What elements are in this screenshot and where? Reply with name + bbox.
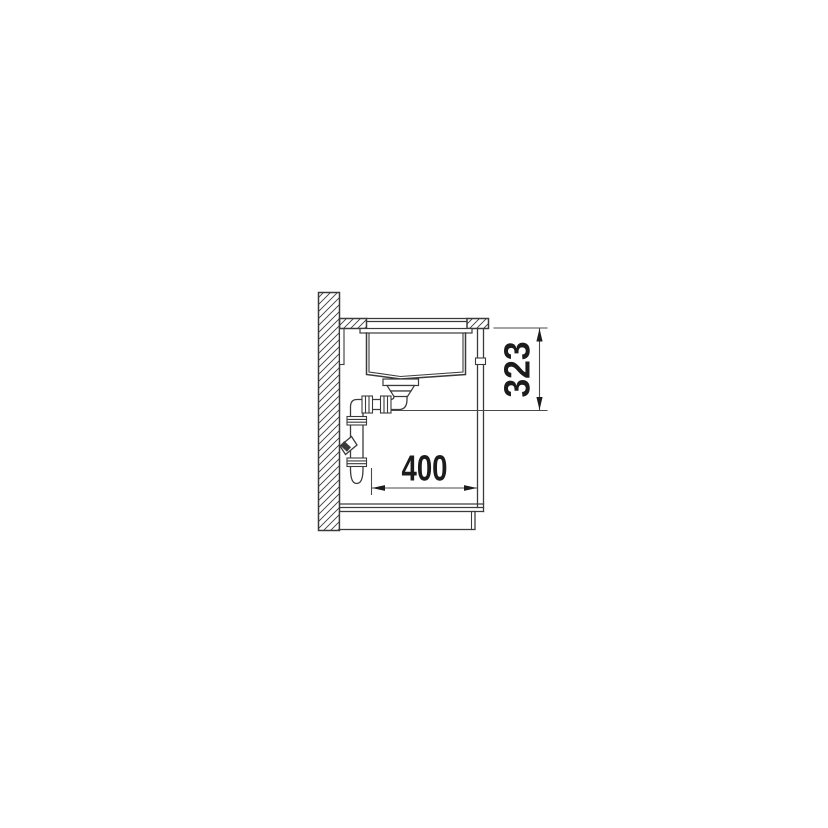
dimension-vertical-label: 323	[497, 342, 538, 398]
drain-strainer	[383, 379, 419, 397]
sink-rim	[360, 329, 472, 334]
arrow-right-icon	[464, 485, 477, 491]
technical-drawing-page: 323 400	[0, 0, 828, 828]
siphon-trap	[340, 396, 407, 484]
sink-fixing-clip	[476, 358, 486, 365]
dimension-horizontal-label: 400	[402, 448, 448, 489]
worktop	[340, 319, 489, 329]
arrow-up-icon	[536, 329, 542, 342]
pipe-coupling	[362, 396, 391, 413]
arrow-left-icon	[372, 485, 385, 491]
cabinet-side-panel	[476, 329, 486, 512]
wall-outlet-branch	[340, 437, 357, 455]
mounting-rail	[340, 329, 345, 365]
sink-installation-section-drawing: 323 400	[0, 0, 828, 828]
plinth	[340, 512, 476, 530]
arrow-down-icon	[536, 397, 542, 410]
cabinet-floor	[340, 504, 484, 512]
wall	[319, 293, 340, 531]
sink-bowl	[367, 333, 466, 379]
